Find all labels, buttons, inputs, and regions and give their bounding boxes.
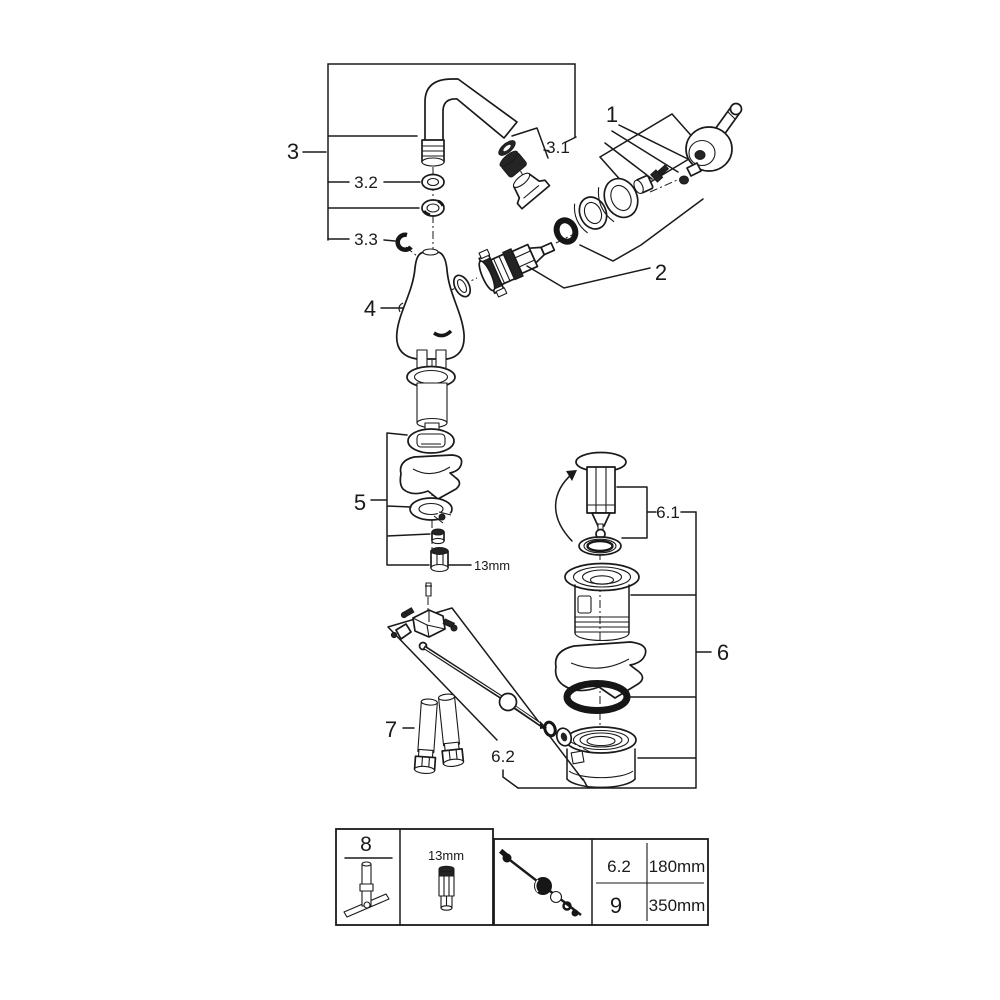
popup-plug [576,453,626,539]
cartridge [473,225,562,300]
label-6: 6 [717,640,729,665]
spout-oring [422,175,444,190]
spout-threaded-base [422,140,444,166]
cartridge-group: 2 [447,173,703,299]
c-clip [398,235,411,250]
legend-row2-length: 350mm [649,896,706,915]
legend-socket-size: 13mm [428,848,464,863]
handle-plug [680,163,702,184]
legend-row1-length: 180mm [649,857,706,876]
drain-lower-body [566,727,636,787]
body-side-port [450,273,473,300]
legend-row2-ref: 9 [610,893,622,918]
supply-hose-left [414,698,439,774]
popup-rod [420,643,548,730]
faucet-body [397,252,464,359]
clevis-screw [425,583,432,596]
rod-oring [543,721,557,738]
label-3-2: 3.2 [354,173,378,192]
socket-adapter [439,866,454,910]
drain-group: 6.1 6 [518,453,729,789]
cap-screw [432,529,444,544]
label-5-size: 13mm [474,558,510,573]
label-7: 7 [385,717,397,742]
body-top-opening [423,249,438,255]
label-3: 3 [287,139,299,164]
label-4: 4 [364,296,376,321]
mounting-group: 5 13mm [354,429,510,573]
cartridge-callout [527,266,650,288]
legend-tool-number: 8 [360,833,372,856]
cartridge-oring [553,217,578,244]
label-3-1: 3.1 [546,138,570,157]
label-6-2: 6.2 [491,747,515,766]
exploded-parts-diagram: 3 3.2 3.3 3.1 1 [0,0,1000,1000]
label-5: 5 [354,490,366,515]
drain-seal [579,537,621,555]
drain-upper-body [565,564,639,641]
stabilizer-ring [408,429,454,453]
label-3-3: 3.3 [354,230,378,249]
mounting-nut [431,548,448,572]
rotation-arrowhead [566,470,577,481]
legend-row1-ref: 6.2 [607,857,631,876]
parts-diagram-page: 3 3.2 3.3 3.1 1 [0,0,1000,1000]
spout-group [398,79,550,261]
legend-table: 8 13mm [336,829,708,925]
rotation-arrow [556,473,573,541]
label-1: 1 [606,102,618,127]
supply-hose-right [436,693,463,767]
threaded-shank [417,383,447,431]
mounting-clamp [400,455,461,499]
horseshoe-washer [410,498,456,525]
aerator-parts [496,138,549,209]
hoses-group: 7 [385,693,464,774]
label-6-1: 6.1 [656,503,680,522]
slotted-ring [422,200,444,216]
label-2: 2 [655,260,667,285]
